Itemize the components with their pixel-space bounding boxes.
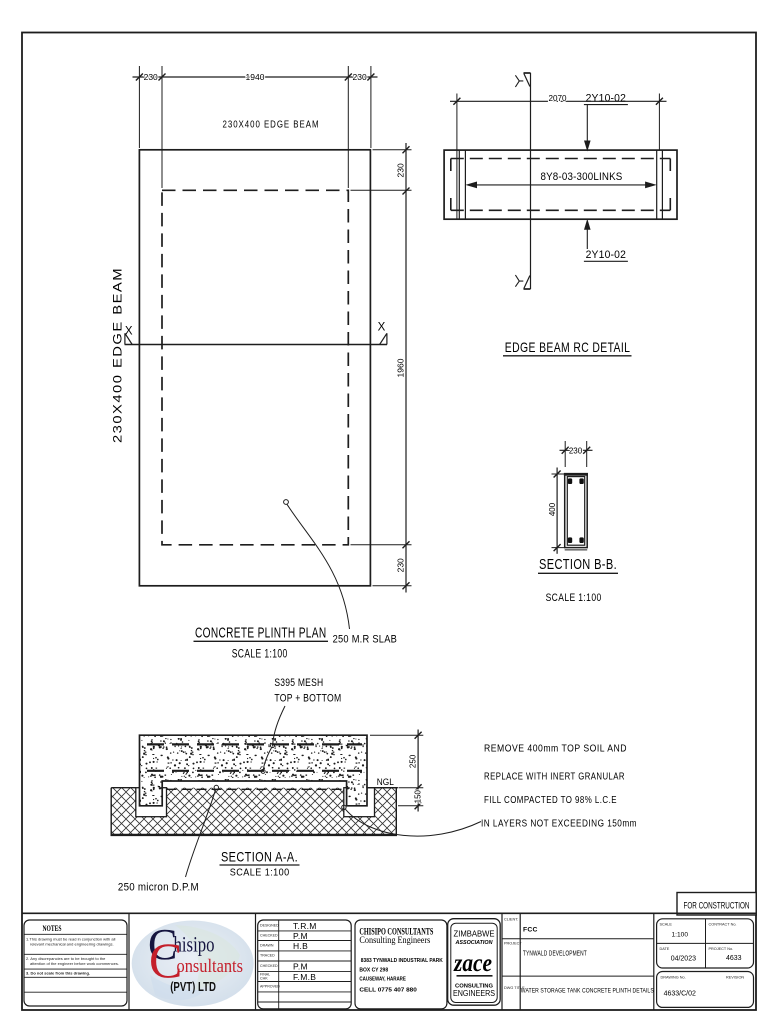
svg-text:DRAWING No.: DRAWING No.	[661, 976, 686, 980]
svg-text:04/2023: 04/2023	[671, 956, 696, 963]
svg-text:150: 150	[414, 789, 423, 803]
svg-text:S395 MESH: S395 MESH	[274, 677, 323, 689]
svg-text:1:100: 1:100	[672, 931, 689, 938]
svg-text:NGL: NGL	[377, 777, 394, 788]
svg-text:2070: 2070	[549, 93, 567, 103]
svg-text:230: 230	[144, 72, 158, 82]
svg-text:attention of the engineer befo: attention of the engineer before work co…	[30, 961, 119, 966]
svg-text:8383 TYNWALD INDUSTRIAL PARK: 8383 TYNWALD INDUSTRIAL PARK	[361, 958, 443, 964]
svg-text:Consulting Engineers: Consulting Engineers	[359, 935, 430, 945]
svg-text:230X400 EDGE BEAM: 230X400 EDGE BEAM	[223, 120, 320, 131]
svg-text:FILL COMPACTED TO 98% L.C.E: FILL COMPACTED TO 98% L.C.E	[484, 794, 617, 806]
svg-text:CELL 0775 407 880: CELL 0775 407 880	[359, 988, 416, 994]
svg-text:DESIGNED: DESIGNED	[260, 924, 279, 928]
svg-text:250 M.R SLAB: 250 M.R SLAB	[333, 634, 398, 646]
svg-text:DATE: DATE	[660, 947, 670, 951]
svg-text:NOTES: NOTES	[43, 923, 62, 933]
svg-text:230X400 EDGE BEAM: 230X400 EDGE BEAM	[111, 267, 125, 443]
svg-text:EDGE BEAM RC DETAIL: EDGE BEAM RC DETAIL	[505, 339, 631, 355]
svg-text:CHK: CHK	[260, 977, 268, 981]
svg-text:SCALE 1:100: SCALE 1:100	[230, 868, 290, 879]
svg-text:400: 400	[548, 502, 557, 516]
svg-text:(PVT) LTD: (PVT) LTD	[170, 979, 216, 994]
svg-text:F.M.B: F.M.B	[293, 972, 316, 982]
svg-text:TYNWALD DEVELOPMENT: TYNWALD DEVELOPMENT	[523, 949, 587, 958]
svg-text:250: 250	[409, 754, 418, 768]
svg-text:T.R.M: T.R.M	[293, 921, 317, 931]
svg-text:APPROVED: APPROVED	[260, 985, 280, 989]
svg-text:P.M: P.M	[293, 931, 308, 941]
svg-text:onsultants: onsultants	[177, 956, 244, 977]
svg-text:2Y10-02: 2Y10-02	[586, 93, 627, 105]
svg-text:ZIMBABWE: ZIMBABWE	[454, 930, 495, 939]
svg-text:ENGINEERS: ENGINEERS	[453, 989, 495, 998]
svg-text:CLIENT:: CLIENT:	[504, 918, 518, 922]
svg-text:230: 230	[353, 72, 367, 82]
svg-text:3. Do not scale from this draw: 3. Do not scale from this drawing.	[26, 971, 90, 976]
svg-text:CONCRETE PLINTH PLAN: CONCRETE PLINTH PLAN	[195, 625, 327, 642]
svg-text:BOX CY 298: BOX CY 298	[359, 968, 388, 974]
svg-text:WATER STORAGE TANK CONCRETE PL: WATER STORAGE TANK CONCRETE PLINTH DETAI…	[521, 988, 654, 995]
svg-text:TOP + BOTTOM: TOP + BOTTOM	[274, 693, 341, 705]
svg-text:CHECKED: CHECKED	[260, 934, 278, 938]
svg-text:SECTION B-B.: SECTION B-B.	[539, 556, 617, 573]
svg-text:SCALE: SCALE	[660, 923, 673, 927]
svg-text:250 micron D.P.M: 250 micron D.P.M	[118, 882, 199, 894]
svg-text:230: 230	[569, 446, 583, 455]
svg-text:CAUSEWAY, HARARE: CAUSEWAY, HARARE	[359, 977, 406, 983]
svg-text:CONTRACT No.: CONTRACT No.	[709, 923, 737, 927]
svg-text:REVISION: REVISION	[726, 976, 744, 980]
svg-text:8Y8-03-300LINKS: 8Y8-03-300LINKS	[541, 171, 623, 183]
svg-text:SCALE 1:100: SCALE 1:100	[546, 592, 602, 604]
svg-text:relevant mechanical and engine: relevant mechanical and engineering draw…	[30, 942, 114, 947]
svg-text:ASSOCIATION: ASSOCIATION	[455, 940, 494, 946]
svg-text:4633: 4633	[726, 955, 742, 962]
svg-text:FCC: FCC	[523, 927, 538, 934]
svg-text:X: X	[378, 322, 386, 334]
svg-text:SCALE 1:100: SCALE 1:100	[232, 649, 288, 661]
svg-text:1960: 1960	[396, 358, 406, 377]
svg-text:IN LAYERS NOT EXCEEDING 150mm: IN LAYERS NOT EXCEEDING 150mm	[481, 818, 637, 830]
svg-text:4633/C/02: 4633/C/02	[664, 991, 696, 998]
svg-text:H.B: H.B	[293, 941, 308, 951]
svg-text:FOR CONSTRUCTION: FOR CONSTRUCTION	[684, 901, 750, 912]
svg-text:PROJECT No.: PROJECT No.	[709, 947, 734, 951]
svg-text:230: 230	[396, 163, 406, 177]
svg-text:230: 230	[396, 558, 406, 572]
svg-text:TRACED: TRACED	[260, 954, 275, 958]
svg-text:zace: zace	[453, 950, 492, 977]
svg-text:DRAWN: DRAWN	[260, 944, 274, 948]
svg-text:REMOVE 400mm TOP SOIL AND: REMOVE 400mm TOP SOIL AND	[484, 743, 627, 755]
svg-text:P.M: P.M	[293, 962, 308, 972]
svg-text:CHECKED: CHECKED	[260, 964, 278, 968]
svg-text:X: X	[125, 326, 133, 338]
svg-text:REPLACE WITH INERT GRANULAR: REPLACE WITH INERT GRANULAR	[484, 771, 625, 783]
svg-text:SECTION A-A.: SECTION A-A.	[221, 849, 298, 865]
svg-text:2Y10-02: 2Y10-02	[586, 249, 627, 261]
svg-text:PROJECT: PROJECT	[504, 942, 522, 946]
svg-text:1940: 1940	[246, 72, 265, 82]
